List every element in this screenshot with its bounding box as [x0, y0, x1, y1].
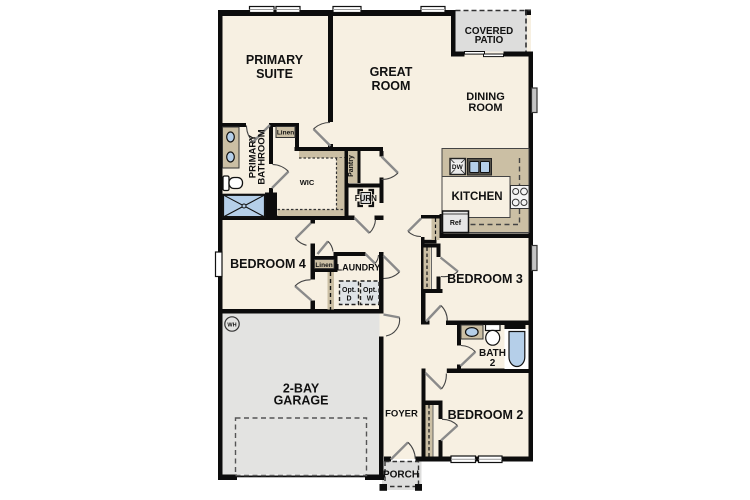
svg-text:GARAGE: GARAGE	[274, 394, 329, 408]
svg-text:BEDROOM 2: BEDROOM 2	[448, 408, 524, 422]
svg-text:Pantry: Pantry	[348, 155, 355, 177]
svg-text:BEDROOM 4: BEDROOM 4	[230, 257, 306, 271]
svg-text:2: 2	[490, 358, 496, 369]
svg-text:SUITE: SUITE	[256, 67, 293, 81]
svg-text:Linen: Linen	[277, 130, 294, 137]
svg-text:Ref: Ref	[450, 220, 462, 227]
svg-text:GREAT: GREAT	[370, 65, 413, 79]
svg-text:PATIO: PATIO	[475, 35, 504, 46]
svg-text:FOYER: FOYER	[385, 409, 418, 420]
svg-text:DW: DW	[452, 164, 464, 171]
svg-text:Opt.: Opt.	[363, 287, 377, 294]
svg-text:Opt.: Opt.	[342, 287, 356, 294]
svg-text:PRIMARY: PRIMARY	[246, 53, 304, 67]
svg-text:W: W	[367, 296, 374, 303]
svg-text:PORCH: PORCH	[383, 470, 419, 481]
svg-text:D: D	[346, 296, 351, 303]
svg-text:BEDROOM 3: BEDROOM 3	[447, 272, 523, 286]
svg-text:WIC: WIC	[300, 178, 315, 187]
svg-text:KITCHEN: KITCHEN	[451, 191, 502, 203]
svg-text:ROOM: ROOM	[468, 102, 502, 114]
svg-text:BATHROOM: BATHROOM	[257, 129, 268, 184]
svg-text:FURN: FURN	[355, 194, 377, 203]
svg-text:LAUNDRY: LAUNDRY	[337, 263, 381, 273]
svg-text:ROOM: ROOM	[372, 79, 411, 93]
svg-text:Linen: Linen	[315, 262, 332, 269]
svg-text:WH: WH	[227, 322, 236, 328]
